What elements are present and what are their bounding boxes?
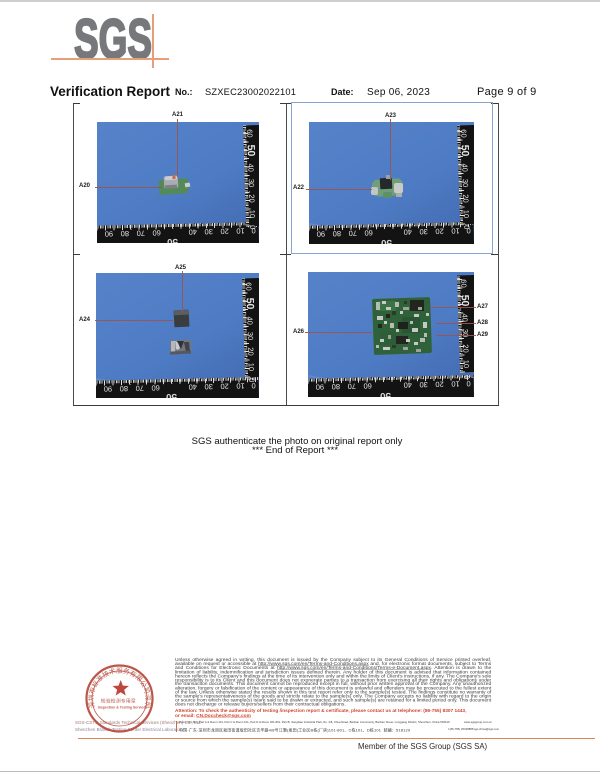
svg-text:..: .. bbox=[149, 702, 151, 706]
svg-text:检验检测专用章: 检验检测专用章 bbox=[101, 698, 136, 705]
svg-text:Inspection & Testing Services: Inspection & Testing Services bbox=[98, 706, 148, 710]
svg-text:..: .. bbox=[88, 702, 90, 706]
